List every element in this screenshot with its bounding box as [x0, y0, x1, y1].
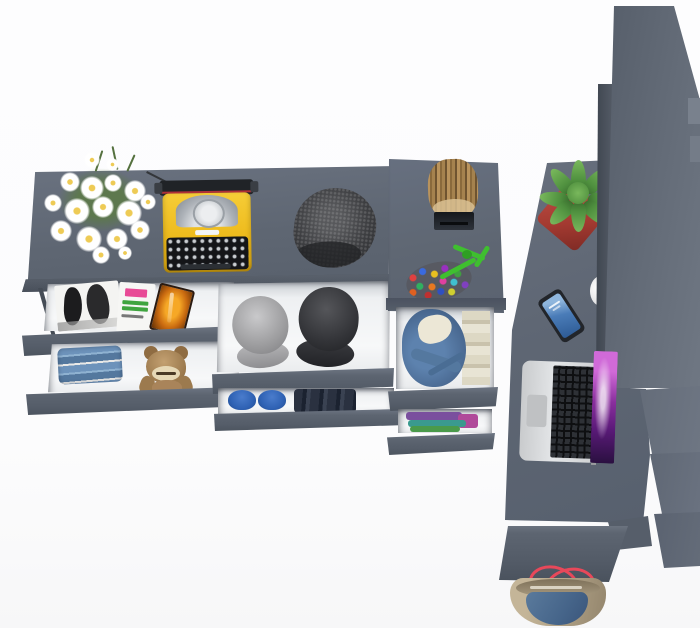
panel-shelf-tab — [690, 136, 700, 162]
denim-jacket — [396, 307, 494, 389]
daisy-icon — [60, 172, 80, 192]
folded-dark-clothes — [294, 389, 356, 413]
folded-green — [410, 426, 460, 432]
daisy-icon — [84, 152, 100, 168]
furniture-render — [0, 0, 700, 628]
daisy-bouquet — [36, 146, 162, 268]
pompom-knot — [462, 250, 472, 259]
bench-step — [652, 512, 700, 568]
magazine-highlight — [167, 292, 174, 322]
daisy-icon — [118, 246, 132, 260]
panel-shelf-tab — [688, 98, 700, 124]
log-stool — [427, 158, 479, 220]
blue-shoe — [258, 390, 286, 410]
wardrobe-panel — [598, 4, 700, 390]
magazine-text — [122, 306, 148, 312]
drawer-front — [387, 433, 495, 455]
folded-purple — [406, 412, 462, 420]
khaki-stack — [462, 311, 490, 385]
teddy-bear — [136, 344, 196, 396]
folded-jeans — [57, 345, 123, 384]
drawer-front — [388, 387, 498, 411]
laptop-screen — [590, 351, 618, 464]
bench-step — [648, 452, 700, 516]
magazine-title — [125, 288, 148, 298]
daisy-icon — [106, 158, 119, 171]
cactus-leaf — [571, 202, 586, 232]
blue-shoe — [228, 390, 256, 410]
laptop-keyboard — [550, 365, 595, 458]
daisy-icon — [130, 220, 150, 240]
black-cap — [291, 285, 365, 372]
typewriter-spacebar — [181, 264, 231, 270]
wall-hook — [434, 212, 474, 230]
typewriter-label — [195, 230, 219, 235]
cactus-center — [567, 182, 589, 204]
typewriter-knob — [250, 181, 258, 192]
daisy-icon — [50, 220, 72, 242]
teddy-mouth — [156, 372, 176, 375]
magazine-black-white — [54, 280, 122, 331]
magazine-text — [121, 314, 143, 319]
laptop — [514, 344, 622, 468]
daisy-icon — [64, 198, 90, 224]
daisy-icon — [92, 246, 110, 264]
bag-zipper — [530, 586, 582, 589]
daisy-icon — [92, 196, 114, 218]
hook-slot — [440, 222, 468, 225]
magazine-text — [122, 300, 148, 306]
laptop-trackpad — [526, 395, 547, 428]
daisy-icon — [44, 194, 62, 212]
stem-icon — [126, 154, 135, 171]
daisy-icon — [140, 194, 156, 210]
tote-bag — [504, 566, 614, 628]
daisy-icon — [104, 174, 122, 192]
gray-cap — [227, 293, 295, 372]
typewriter — [159, 175, 255, 273]
typewriter-knob — [154, 183, 162, 194]
